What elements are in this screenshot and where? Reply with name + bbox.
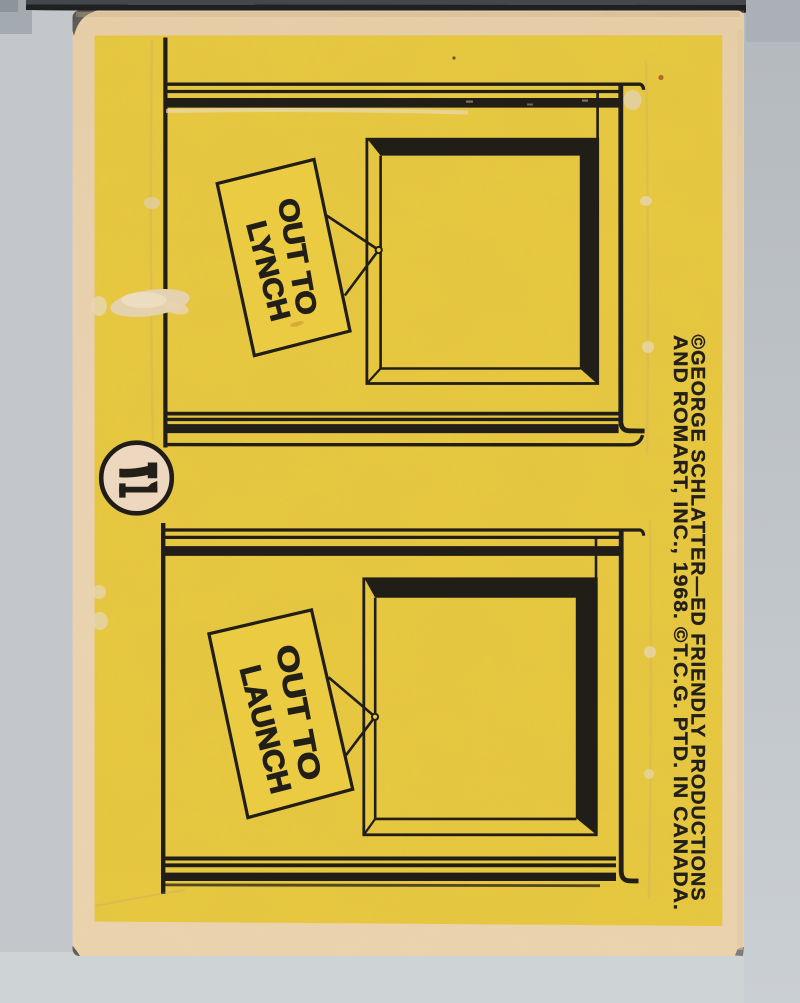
svg-text:AND ROMART, INC., 1968. ©T.C.G: AND ROMART, INC., 1968. ©T.C.G. PTD. IN …: [669, 335, 691, 911]
